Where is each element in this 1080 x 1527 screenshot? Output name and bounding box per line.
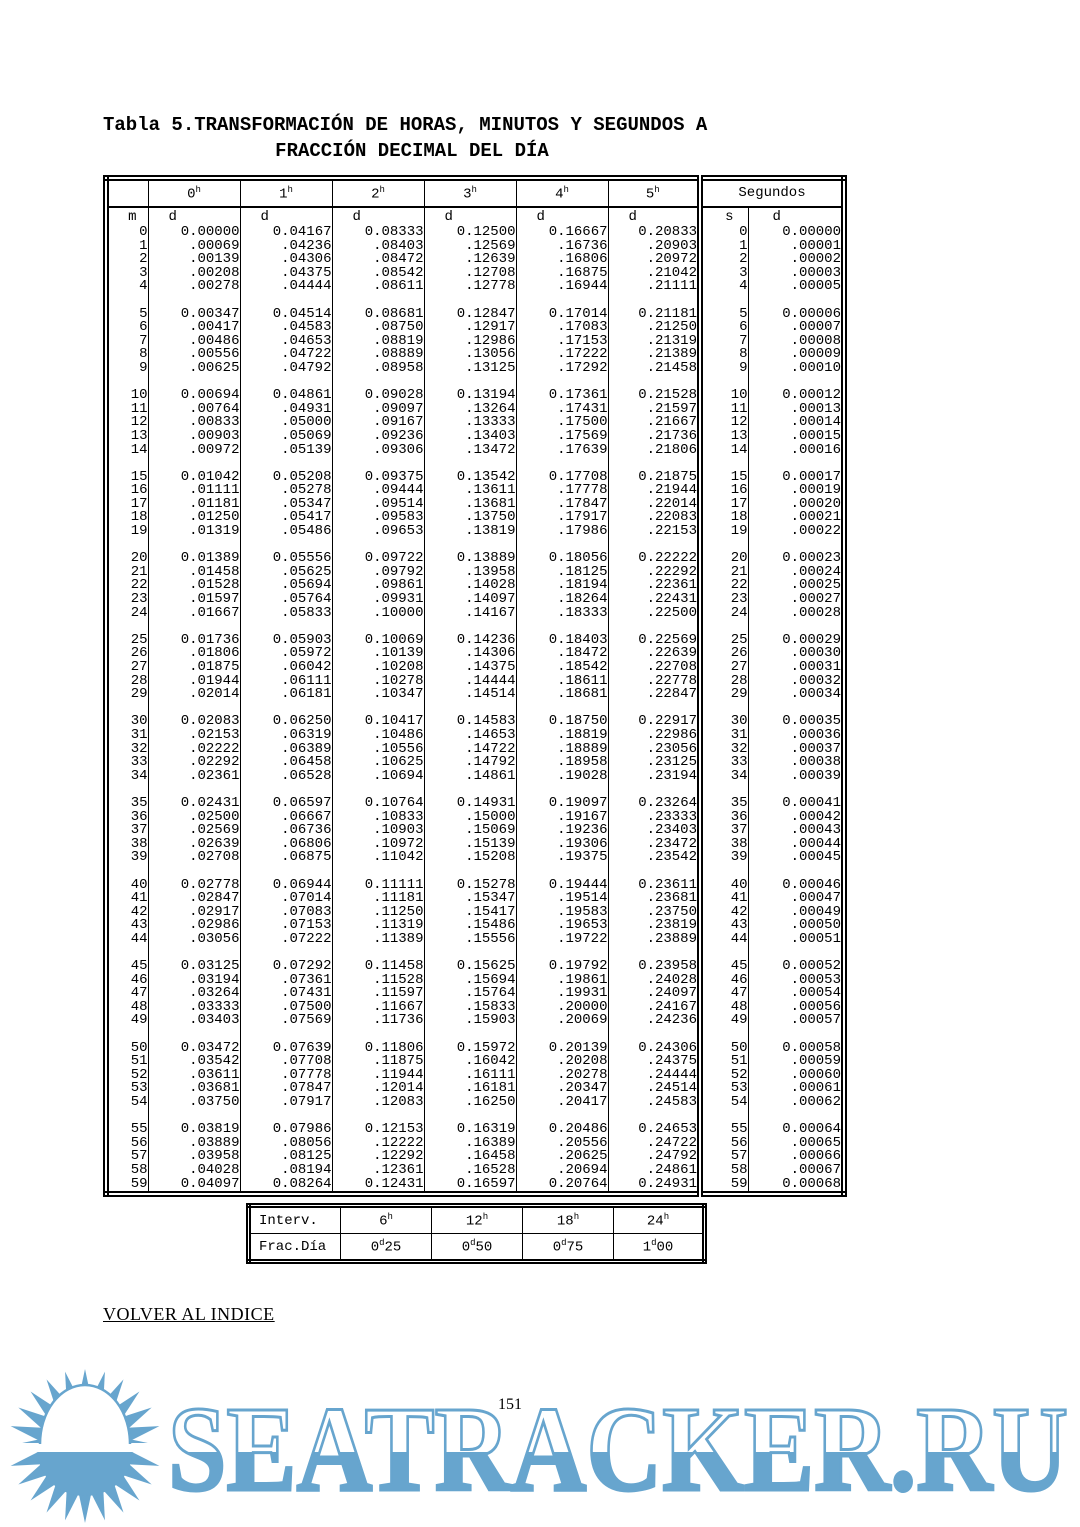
cell-d-2h: .09653 bbox=[332, 525, 424, 539]
cell-d-4h: .18333 bbox=[516, 607, 608, 621]
cell-d-3h: .14861 bbox=[424, 770, 516, 784]
cell-minute: 34 bbox=[106, 770, 148, 784]
cell-minute: 24 bbox=[106, 607, 148, 621]
interval-12h: 12h bbox=[432, 1206, 523, 1234]
interval-row: Interv. 6h 12h 18h 24h bbox=[249, 1206, 705, 1234]
interval-24h: 24h bbox=[614, 1206, 705, 1234]
cell-d-5h: .23542 bbox=[608, 851, 700, 865]
cell-d-5h: .22500 bbox=[608, 607, 700, 621]
table-row: 54.03750.07917.12083.16250.20417.2458354… bbox=[106, 1096, 844, 1110]
cell-d-0h: .00972 bbox=[148, 444, 240, 458]
cell-d-2h: .11042 bbox=[332, 851, 424, 865]
cell-d-seconds: 0.00068 bbox=[748, 1178, 844, 1195]
cell-d-0h: .03056 bbox=[148, 933, 240, 947]
fraction-row: Frac.Día 0d25 0d50 0d75 1d00 bbox=[249, 1234, 705, 1262]
cell-d-seconds: .00016 bbox=[748, 444, 844, 458]
cell-d-5h: .24583 bbox=[608, 1096, 700, 1110]
cell-d-4h: .17292 bbox=[516, 362, 608, 376]
cell-d-1h: .07917 bbox=[240, 1096, 332, 1110]
cell-d-1h: .04444 bbox=[240, 280, 332, 294]
cell-minute: 54 bbox=[106, 1096, 148, 1110]
cell-d-5h: .21806 bbox=[608, 444, 700, 458]
cell-d-seconds: .00051 bbox=[748, 933, 844, 947]
cell-d-2h: .09306 bbox=[332, 444, 424, 458]
cell-d-2h: .08958 bbox=[332, 362, 424, 376]
cell-d-3h: .13472 bbox=[424, 444, 516, 458]
page-title-line1: Tabla 5.TRANSFORMACIÓN DE HORAS, MINUTOS… bbox=[103, 112, 721, 138]
hour-header-3h: 3h bbox=[424, 178, 516, 207]
cell-d-0h: .02361 bbox=[148, 770, 240, 784]
cell-second: 14 bbox=[700, 444, 748, 458]
cell-d-0h: .00278 bbox=[148, 280, 240, 294]
hour-header-2h: 2h bbox=[332, 178, 424, 207]
cell-d-seconds: .00034 bbox=[748, 688, 844, 702]
cell-d-2h: 0.12431 bbox=[332, 1178, 424, 1195]
table-row: 14.00972.05139.09306.13472.17639.2180614… bbox=[106, 444, 844, 458]
cell-d-0h: .01667 bbox=[148, 607, 240, 621]
cell-d-2h: .11736 bbox=[332, 1014, 424, 1028]
cell-d-5h: .23889 bbox=[608, 933, 700, 947]
cell-d-3h: .15903 bbox=[424, 1014, 516, 1028]
cell-minute: 49 bbox=[106, 1014, 148, 1028]
cell-d-3h: 0.16597 bbox=[424, 1178, 516, 1195]
cell-d-5h: .23194 bbox=[608, 770, 700, 784]
cell-d-5h: .21111 bbox=[608, 280, 700, 294]
cell-second: 44 bbox=[700, 933, 748, 947]
cell-d-seconds: .00039 bbox=[748, 770, 844, 784]
cell-d-1h: .05833 bbox=[240, 607, 332, 621]
cell-d-5h: .21458 bbox=[608, 362, 700, 376]
cell-d-4h: .19722 bbox=[516, 933, 608, 947]
cell-d-3h: .12778 bbox=[424, 280, 516, 294]
cell-d-3h: .14514 bbox=[424, 688, 516, 702]
cell-second: 9 bbox=[700, 362, 748, 376]
page-title-line2: FRACCIÓN DECIMAL DEL DÍA bbox=[103, 138, 721, 164]
table-row: 29.02014.06181.10347.14514.18681.2284729… bbox=[106, 688, 844, 702]
cell-d-3h: .14167 bbox=[424, 607, 516, 621]
corner-cell bbox=[106, 178, 148, 207]
hour-header-4h: 4h bbox=[516, 178, 608, 207]
cell-minute: 14 bbox=[106, 444, 148, 458]
cell-d-0h: .03750 bbox=[148, 1096, 240, 1110]
cell-d-4h: .17986 bbox=[516, 525, 608, 539]
cell-second: 34 bbox=[700, 770, 748, 784]
cell-d-3h: .15208 bbox=[424, 851, 516, 865]
cell-second: 4 bbox=[700, 280, 748, 294]
cell-d-1h: .06181 bbox=[240, 688, 332, 702]
cell-d-4h: .17639 bbox=[516, 444, 608, 458]
interval-label: Interv. bbox=[249, 1206, 341, 1234]
fraction-label: Frac.Día bbox=[249, 1234, 341, 1262]
cell-d-1h: .07222 bbox=[240, 933, 332, 947]
cell-d-0h: .03403 bbox=[148, 1014, 240, 1028]
cell-d-seconds: .00022 bbox=[748, 525, 844, 539]
table-row: 49.03403.07569.11736.15903.20069.2423649… bbox=[106, 1014, 844, 1028]
cell-d-0h: .00625 bbox=[148, 362, 240, 376]
cell-d-1h: .07569 bbox=[240, 1014, 332, 1028]
hour-header-5h: 5h bbox=[608, 178, 700, 207]
interval-6h: 6h bbox=[341, 1206, 432, 1234]
cell-d-seconds: .00045 bbox=[748, 851, 844, 865]
cell-d-1h: .06528 bbox=[240, 770, 332, 784]
cell-d-3h: .15556 bbox=[424, 933, 516, 947]
cell-d-2h: .10000 bbox=[332, 607, 424, 621]
table-row: 34.02361.06528.10694.14861.19028.2319434… bbox=[106, 770, 844, 784]
cell-second: 54 bbox=[700, 1096, 748, 1110]
cell-second: 19 bbox=[700, 525, 748, 539]
document-page: Tabla 5.TRANSFORMACIÓN DE HORAS, MINUTOS… bbox=[0, 0, 1080, 1527]
cell-d-3h: .16250 bbox=[424, 1096, 516, 1110]
cell-second: 59 bbox=[700, 1178, 748, 1195]
table-row: 19.01319.05486.09653.13819.17986.2215319… bbox=[106, 525, 844, 539]
interval-18h: 18h bbox=[523, 1206, 614, 1234]
segundos-header: Segundos bbox=[700, 178, 844, 207]
volver-al-indice-link[interactable]: VOLVER AL INDICE bbox=[103, 1304, 275, 1325]
hour-header-1h: 1h bbox=[240, 178, 332, 207]
cell-d-seconds: .00005 bbox=[748, 280, 844, 294]
cell-d-seconds: .00057 bbox=[748, 1014, 844, 1028]
cell-d-4h: .18681 bbox=[516, 688, 608, 702]
hour-header-0h: 0h bbox=[148, 178, 240, 207]
cell-d-3h: .13125 bbox=[424, 362, 516, 376]
fraction-050: 0d50 bbox=[432, 1234, 523, 1262]
cell-d-5h: 0.24931 bbox=[608, 1178, 700, 1195]
cell-d-2h: .10347 bbox=[332, 688, 424, 702]
cell-d-seconds: .00010 bbox=[748, 362, 844, 376]
cell-d-seconds: .00062 bbox=[748, 1096, 844, 1110]
cell-d-1h: .05486 bbox=[240, 525, 332, 539]
fraction-100: 1d00 bbox=[614, 1234, 705, 1262]
interval-table: Interv. 6h 12h 18h 24h Frac.Día 0d25 0d5… bbox=[246, 1203, 707, 1264]
table-row: 24.01667.05833.10000.14167.18333.2250024… bbox=[106, 607, 844, 621]
page-number: 151 bbox=[498, 1396, 522, 1414]
table-row: 39.02708.06875.11042.15208.19375.2354239… bbox=[106, 851, 844, 865]
table-row: 4.00278.04444.08611.12778.16944.211114.0… bbox=[106, 280, 844, 294]
cell-d-1h: .06875 bbox=[240, 851, 332, 865]
cell-d-5h: .22847 bbox=[608, 688, 700, 702]
cell-d-2h: .11389 bbox=[332, 933, 424, 947]
cell-second: 29 bbox=[700, 688, 748, 702]
cell-minute: 4 bbox=[106, 280, 148, 294]
cell-d-0h: .01319 bbox=[148, 525, 240, 539]
fraction-075: 0d75 bbox=[523, 1234, 614, 1262]
table-row: 44.03056.07222.11389.15556.19722.2388944… bbox=[106, 933, 844, 947]
cell-second: 39 bbox=[700, 851, 748, 865]
cell-d-2h: .10694 bbox=[332, 770, 424, 784]
fraction-025: 0d25 bbox=[341, 1234, 432, 1262]
table-row: 9.00625.04792.08958.13125.17292.214589.0… bbox=[106, 362, 844, 376]
cell-d-5h: .22153 bbox=[608, 525, 700, 539]
cell-d-3h: .13819 bbox=[424, 525, 516, 539]
conversion-table: 0h 1h 2h 3h 4h 5h Segundos m d d d d d d… bbox=[103, 175, 847, 1197]
cell-d-0h: .02708 bbox=[148, 851, 240, 865]
page-title: Tabla 5.TRANSFORMACIÓN DE HORAS, MINUTOS… bbox=[103, 112, 721, 164]
cell-minute: 39 bbox=[106, 851, 148, 865]
cell-d-4h: .20069 bbox=[516, 1014, 608, 1028]
cell-d-4h: .19028 bbox=[516, 770, 608, 784]
sun-logo bbox=[1, 1369, 169, 1523]
table-row: 590.040970.082640.124310.165970.207640.2… bbox=[106, 1178, 844, 1195]
cell-d-1h: .05139 bbox=[240, 444, 332, 458]
cell-minute: 44 bbox=[106, 933, 148, 947]
cell-minute: 19 bbox=[106, 525, 148, 539]
cell-second: 24 bbox=[700, 607, 748, 621]
cell-d-0h: .02014 bbox=[148, 688, 240, 702]
cell-d-seconds: .00028 bbox=[748, 607, 844, 621]
cell-d-4h: .20417 bbox=[516, 1096, 608, 1110]
watermark-text: SEATRACKER.RU bbox=[168, 1382, 1068, 1517]
cell-minute: 59 bbox=[106, 1178, 148, 1195]
cell-minute: 9 bbox=[106, 362, 148, 376]
cell-d-4h: 0.20764 bbox=[516, 1178, 608, 1195]
cell-minute: 29 bbox=[106, 688, 148, 702]
cell-second: 49 bbox=[700, 1014, 748, 1028]
table-header-row: 0h 1h 2h 3h 4h 5h Segundos bbox=[106, 178, 844, 207]
cell-d-1h: .04792 bbox=[240, 362, 332, 376]
cell-d-2h: .12083 bbox=[332, 1096, 424, 1110]
seatracker-watermark: SEATRACKER.RU bbox=[0, 1360, 1080, 1527]
cell-d-4h: .16944 bbox=[516, 280, 608, 294]
cell-d-4h: .19375 bbox=[516, 851, 608, 865]
cell-d-5h: .24236 bbox=[608, 1014, 700, 1028]
cell-d-2h: .08611 bbox=[332, 280, 424, 294]
cell-d-1h: 0.08264 bbox=[240, 1178, 332, 1195]
cell-d-0h: 0.04097 bbox=[148, 1178, 240, 1195]
